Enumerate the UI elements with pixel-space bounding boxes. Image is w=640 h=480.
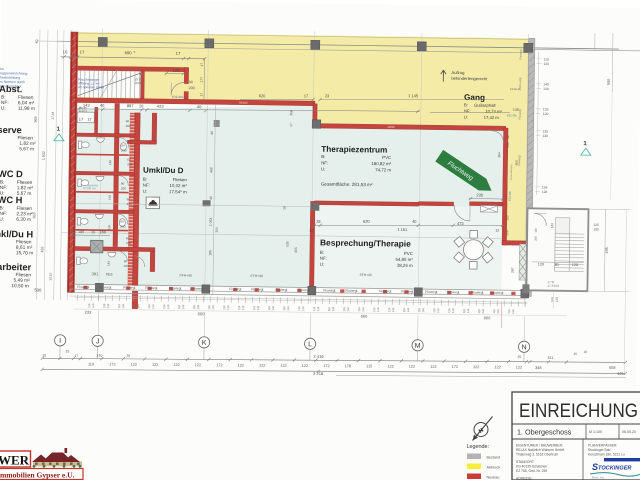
svg-text:455: 455 <box>294 247 298 253</box>
svg-text:5,67 m: 5,67 m <box>19 146 34 152</box>
svg-text:B:: B: <box>0 179 4 185</box>
svg-text:140: 140 <box>481 308 485 313</box>
svg-text:122: 122 <box>430 365 436 369</box>
svg-text:15: 15 <box>71 230 75 234</box>
svg-text:122: 122 <box>173 363 179 367</box>
svg-text:500: 500 <box>607 79 611 85</box>
svg-text:140: 140 <box>256 305 260 310</box>
svg-text:B:: B: <box>0 205 4 211</box>
svg-text:287: 287 <box>511 267 515 273</box>
svg-text:110: 110 <box>417 308 421 313</box>
svg-text:Fixvergl.: Fixvergl. <box>99 285 112 289</box>
svg-text:122: 122 <box>302 364 308 368</box>
svg-text:140: 140 <box>166 304 170 309</box>
svg-text:15: 15 <box>65 349 69 353</box>
svg-text:6,30 m: 6,30 m <box>16 217 31 223</box>
svg-text:620: 620 <box>363 219 371 224</box>
svg-text:119: 119 <box>88 362 94 366</box>
svg-text:449: 449 <box>617 372 623 376</box>
svg-text:270: 270 <box>96 354 102 358</box>
svg-text:200: 200 <box>127 202 132 206</box>
svg-text:B:: B: <box>1 94 6 100</box>
svg-text:110: 110 <box>477 308 481 313</box>
svg-text:140: 140 <box>196 304 200 309</box>
svg-text:110: 110 <box>507 309 511 314</box>
svg-text:160: 160 <box>108 195 112 200</box>
svg-text:Legende:: Legende: <box>467 444 489 450</box>
svg-text:11,98 m: 11,98 m <box>18 106 35 112</box>
svg-text:Gesamtfläche: 281,53 m²: Gesamtfläche: 281,53 m² <box>321 182 373 188</box>
svg-text:110: 110 <box>207 305 211 310</box>
svg-text:Mitarbeiter: Mitarbeiter <box>0 262 32 273</box>
svg-text:Umkl/Du H: Umkl/Du H <box>0 229 33 240</box>
svg-text:140: 140 <box>391 307 395 312</box>
svg-text:180: 180 <box>108 160 112 165</box>
svg-text:23: 23 <box>325 94 329 98</box>
svg-text:17: 17 <box>80 50 85 55</box>
svg-text:138: 138 <box>543 134 549 138</box>
svg-text:495: 495 <box>605 247 609 253</box>
svg-text:110: 110 <box>387 307 391 312</box>
svg-text:M 1:100: M 1:100 <box>589 430 602 434</box>
svg-text:FPH+95: FPH+95 <box>518 77 522 88</box>
svg-text:40: 40 <box>35 39 39 43</box>
svg-text:190: 190 <box>505 215 509 221</box>
svg-text:12: 12 <box>495 228 499 232</box>
svg-text:969: 969 <box>34 116 38 122</box>
svg-text:110: 110 <box>342 307 346 312</box>
svg-text:1 161: 1 161 <box>397 227 408 232</box>
svg-text:140: 140 <box>555 297 559 302</box>
svg-text:660: 660 <box>361 314 369 319</box>
svg-text:180,82 m²: 180,82 m² <box>371 161 391 166</box>
svg-text:140: 140 <box>226 305 230 310</box>
svg-text:140: 140 <box>271 306 275 311</box>
svg-text:1,82 m²: 1,82 m² <box>19 141 36 147</box>
svg-text:140: 140 <box>543 82 549 86</box>
svg-text:110: 110 <box>402 307 406 312</box>
svg-text:120: 120 <box>172 68 180 73</box>
svg-text:110: 110 <box>282 306 286 311</box>
svg-text:17,42 m: 17,42 m <box>484 115 500 120</box>
svg-text:122: 122 <box>238 363 244 367</box>
svg-text:TOCKINGER: TOCKINGER <box>598 466 631 472</box>
svg-text:06.05.20: 06.05.20 <box>622 430 636 434</box>
svg-text:232: 232 <box>85 310 93 315</box>
svg-text:40: 40 <box>412 220 416 224</box>
svg-text:110: 110 <box>162 304 166 309</box>
svg-text:RELAX Natürlich Wohnen GmbH: RELAX Natürlich Wohnen GmbH <box>516 448 565 452</box>
svg-text:WC H: WC H <box>0 195 23 205</box>
svg-text:B:: B: <box>320 250 324 255</box>
svg-text:FFH+90: FFH+90 <box>180 273 193 277</box>
svg-text:200: 200 <box>126 241 131 245</box>
svg-text:10: 10 <box>126 354 130 358</box>
svg-text:120: 120 <box>543 112 549 116</box>
svg-text:12: 12 <box>309 228 313 232</box>
svg-text:Fixvergl.: Fixvergl. <box>229 287 242 291</box>
svg-text:140: 140 <box>91 303 95 308</box>
svg-text:140: 140 <box>346 307 350 312</box>
svg-text:473: 473 <box>457 221 465 226</box>
svg-text:NF:: NF: <box>320 256 327 261</box>
svg-text:172: 172 <box>216 363 222 367</box>
svg-text:17,54⁵ m: 17,54⁵ m <box>169 189 187 194</box>
svg-text:PVC: PVC <box>404 251 413 256</box>
svg-text:28: 28 <box>282 206 286 210</box>
svg-text:140: 140 <box>211 305 215 310</box>
svg-text:78,5: 78,5 <box>106 272 113 276</box>
svg-text:E32-30c: E32-30c <box>507 113 518 117</box>
svg-text:NF:: NF: <box>321 160 328 165</box>
svg-text:140: 140 <box>136 304 140 309</box>
svg-text:Fixvergl.: Fixvergl. <box>275 288 288 292</box>
svg-text:690: 690 <box>125 50 133 55</box>
svg-text:17: 17 <box>304 94 308 98</box>
svg-text:E32-90e: E32-90e <box>172 95 184 99</box>
svg-text:122: 122 <box>195 363 201 367</box>
svg-text:185: 185 <box>208 250 212 256</box>
svg-text:140: 140 <box>121 303 125 308</box>
svg-text:NF:: NF: <box>143 183 150 188</box>
svg-text:Fixvergl.: Fixvergl. <box>401 290 414 294</box>
svg-text:110: 110 <box>177 304 181 309</box>
svg-text:122: 122 <box>494 365 500 369</box>
svg-text:U:: U: <box>464 115 468 120</box>
svg-text:200: 200 <box>121 186 126 190</box>
svg-text:PVC: PVC <box>382 155 391 160</box>
svg-text:122: 122 <box>152 363 158 367</box>
svg-text:10: 10 <box>584 350 588 354</box>
svg-text:Fliesen: Fliesen <box>17 180 33 186</box>
svg-text:Bestand: Bestand <box>487 456 501 460</box>
svg-text:110: 110 <box>267 306 271 311</box>
svg-text:321: 321 <box>547 356 553 360</box>
svg-text:Abbruch: Abbruch <box>487 466 501 470</box>
svg-text:40: 40 <box>210 131 214 135</box>
svg-text:140: 140 <box>376 307 380 312</box>
svg-text:RE90: RE90 <box>388 125 395 129</box>
svg-text:17: 17 <box>289 123 293 127</box>
svg-text:60: 60 <box>127 158 131 162</box>
svg-text:FFH+90: FFH+90 <box>360 273 373 277</box>
svg-text:80: 80 <box>121 182 125 186</box>
svg-text:NF:: NF: <box>0 185 8 191</box>
svg-text:235: 235 <box>476 192 484 197</box>
svg-text:64,85 m²: 64,85 m² <box>395 257 413 262</box>
svg-text:Neubau: Neubau <box>487 476 500 480</box>
svg-text:200: 200 <box>121 148 126 152</box>
svg-text:364: 364 <box>497 152 501 158</box>
svg-text:E32-30c: E32-30c <box>508 190 512 200</box>
svg-text:200: 200 <box>124 264 129 268</box>
svg-text:K: K <box>202 340 207 347</box>
svg-text:Reserve: Reserve <box>0 125 22 136</box>
svg-text:15: 15 <box>573 352 577 356</box>
svg-text:2 419: 2 419 <box>313 354 324 359</box>
svg-text:120: 120 <box>572 263 578 267</box>
svg-text:80: 80 <box>121 144 125 148</box>
svg-text:110: 110 <box>447 308 451 313</box>
svg-text:90: 90 <box>189 80 193 84</box>
svg-text:120: 120 <box>544 62 550 66</box>
svg-text:226: 226 <box>505 230 509 236</box>
svg-text:17: 17 <box>200 63 204 67</box>
svg-text:200: 200 <box>534 236 538 241</box>
svg-text:110: 110 <box>147 304 151 309</box>
svg-text:15,70 m: 15,70 m <box>16 250 33 256</box>
svg-text:140: 140 <box>106 303 110 308</box>
svg-text:I: I <box>59 338 61 345</box>
svg-text:Fixvergl.: Fixvergl. <box>471 291 484 295</box>
svg-text:120: 120 <box>543 87 549 91</box>
svg-text:100: 100 <box>107 225 111 230</box>
svg-text:Bmstr. Ing. ...: Bmstr. Ing. ... <box>592 476 608 480</box>
svg-text:120: 120 <box>538 262 544 266</box>
svg-text:Fixvergl.: Fixvergl. <box>77 285 90 289</box>
svg-text:H=100 cm: H=100 cm <box>83 186 97 190</box>
svg-text:140: 140 <box>331 306 335 311</box>
svg-text:100: 100 <box>593 227 599 231</box>
svg-text:EZ 768, Grst. Nr. 259: EZ 768, Grst. Nr. 259 <box>516 469 547 473</box>
svg-text:Thalerweg 3, 5162 Obertrum: Thalerweg 3, 5162 Obertrum <box>516 452 558 456</box>
svg-text:200: 200 <box>120 224 125 228</box>
svg-text:Fixvergl.: Fixvergl. <box>345 289 358 293</box>
svg-text:135: 135 <box>543 129 549 133</box>
svg-text:60: 60 <box>126 236 130 240</box>
svg-text:L: L <box>308 341 312 348</box>
svg-text:KG 40135 Schalchen: KG 40135 Schalchen <box>516 464 547 468</box>
svg-text:PLANVERFASSER:: PLANVERFASSER: <box>588 444 617 448</box>
svg-text:110: 110 <box>312 306 316 311</box>
svg-text:115: 115 <box>366 364 372 368</box>
svg-text:U:: U: <box>0 216 4 222</box>
svg-text:140: 140 <box>361 307 365 312</box>
svg-text:110: 110 <box>372 307 376 312</box>
svg-text:Fixvergl.: Fixvergl. <box>191 287 204 291</box>
svg-text:Fixvergl.: Fixvergl. <box>425 290 438 294</box>
svg-text:Fliesen: Fliesen <box>173 177 188 182</box>
svg-text:Fliesen: Fliesen <box>16 272 32 278</box>
svg-text:200: 200 <box>506 142 510 147</box>
svg-text:300: 300 <box>215 227 219 232</box>
svg-text:160: 160 <box>99 229 107 234</box>
svg-text:535: 535 <box>285 241 289 247</box>
svg-text:140: 140 <box>301 306 305 311</box>
svg-text:110: 110 <box>432 308 436 313</box>
svg-text:110: 110 <box>462 308 466 313</box>
svg-text:460: 460 <box>515 160 519 166</box>
svg-text:U:: U: <box>1 105 6 111</box>
svg-text:2,23 m²: 2,23 m² <box>16 211 33 217</box>
svg-text:1 145: 1 145 <box>408 93 419 98</box>
svg-text:Fixvergl.: Fixvergl. <box>518 108 522 119</box>
svg-text:25: 25 <box>517 355 521 359</box>
svg-text:140: 140 <box>286 306 290 311</box>
svg-text:Fixvergl.: Fixvergl. <box>491 291 504 295</box>
svg-text:40: 40 <box>209 196 213 200</box>
svg-text:1,82 m²: 1,82 m² <box>17 185 34 191</box>
svg-text:ADRESSE:: ADRESSE: <box>516 477 533 480</box>
svg-text:Aufzug: Aufzug <box>451 70 465 75</box>
svg-text:81: 81 <box>555 263 559 267</box>
svg-text:120: 120 <box>534 228 538 233</box>
svg-text:Fixvergl.: Fixvergl. <box>447 290 460 294</box>
svg-text:200: 200 <box>127 163 132 167</box>
svg-text:Fixvergl.: Fixvergl. <box>123 286 136 290</box>
svg-text:140: 140 <box>436 308 440 313</box>
svg-text:140: 140 <box>451 308 455 313</box>
svg-text:140: 140 <box>511 309 515 314</box>
svg-text:6,04 m²: 6,04 m² <box>18 100 35 106</box>
svg-text:10: 10 <box>91 230 95 234</box>
svg-text:NF:: NF: <box>464 108 471 113</box>
svg-text:U:: U: <box>143 189 147 194</box>
svg-text:128: 128 <box>542 190 548 194</box>
svg-text:620: 620 <box>259 93 267 98</box>
svg-text:Besprechung/Therapie: Besprechung/Therapie <box>320 237 411 248</box>
svg-text:Fliesen: Fliesen <box>16 206 32 212</box>
svg-text:140: 140 <box>496 309 500 314</box>
svg-text:U:: U: <box>320 262 324 267</box>
svg-text:90: 90 <box>506 135 510 139</box>
svg-text:122: 122 <box>280 364 286 368</box>
svg-text:28: 28 <box>316 220 320 224</box>
svg-text:183: 183 <box>107 261 111 266</box>
svg-text:110: 110 <box>327 306 331 311</box>
svg-text:110: 110 <box>222 305 226 310</box>
svg-text:Therapiezentrum: Therapiezentrum <box>321 145 387 155</box>
svg-text:110: 110 <box>492 309 496 314</box>
svg-text:EIGENTÜMER / BAUWERBER:: EIGENTÜMER / BAUWERBER: <box>516 444 563 448</box>
svg-text:455: 455 <box>40 247 44 253</box>
svg-text:172: 172 <box>109 363 115 367</box>
svg-text:EINREICHUNG: EINREICHUNG <box>519 400 638 422</box>
svg-text:140: 140 <box>181 304 185 309</box>
svg-text:200: 200 <box>189 86 195 90</box>
svg-text:660: 660 <box>198 311 206 316</box>
svg-text:Fliesen: Fliesen <box>17 135 33 141</box>
svg-text:M: M <box>415 343 421 350</box>
svg-text:Kerschham 180, 5221 Lo: Kerschham 180, 5221 Lo <box>588 452 625 456</box>
svg-text:140: 140 <box>316 306 320 311</box>
svg-text:Fliesen: Fliesen <box>18 95 34 101</box>
svg-text:140: 140 <box>466 308 470 313</box>
svg-text:110: 110 <box>252 305 256 310</box>
svg-text:172: 172 <box>452 365 458 369</box>
svg-text:140: 140 <box>151 304 155 309</box>
svg-text:RE290: RE290 <box>239 101 248 105</box>
svg-text:B:: B: <box>143 177 147 182</box>
svg-text:17: 17 <box>176 51 181 56</box>
svg-text:90: 90 <box>124 259 128 263</box>
svg-text:Fixvergl.: Fixvergl. <box>323 288 336 292</box>
svg-text:177: 177 <box>200 77 204 83</box>
svg-text:110: 110 <box>357 307 361 312</box>
svg-text:135: 135 <box>543 107 549 111</box>
svg-text:Fixvergl.: Fixvergl. <box>251 287 264 291</box>
svg-text:Immobilien Gypser e.U.: Immobilien Gypser e.U. <box>0 470 75 479</box>
svg-text:17,44: 17,44 <box>51 111 55 119</box>
svg-text:110: 110 <box>237 305 241 310</box>
svg-text:5,49 m²: 5,49 m² <box>13 278 30 284</box>
svg-text:Fixvergl.: Fixvergl. <box>145 286 158 290</box>
svg-text:122: 122 <box>473 365 479 369</box>
svg-text:60: 60 <box>127 197 131 201</box>
svg-text:Sicherheitsbel.: Sicherheitsbel. <box>510 163 513 180</box>
svg-text:110: 110 <box>102 303 106 308</box>
svg-text:10,50 m: 10,50 m <box>11 283 28 289</box>
svg-text:3 216: 3 216 <box>313 371 324 376</box>
svg-text:125: 125 <box>593 223 599 227</box>
svg-text:10: 10 <box>63 49 68 54</box>
svg-text:Fixvergl.: Fixvergl. <box>297 288 310 292</box>
svg-text:122: 122 <box>131 363 137 367</box>
svg-text:B:: B: <box>464 102 468 107</box>
svg-text:NF:: NF: <box>0 211 7 217</box>
svg-text:38,26 m: 38,26 m <box>397 263 413 268</box>
svg-text:17: 17 <box>200 93 204 97</box>
svg-text:140: 140 <box>241 305 245 310</box>
svg-text:460: 460 <box>209 167 213 173</box>
svg-text:172: 172 <box>323 364 329 368</box>
svg-text:500: 500 <box>34 287 42 292</box>
svg-text:17: 17 <box>74 354 78 358</box>
svg-text:WER: WER <box>0 453 30 468</box>
svg-text:1 063: 1 063 <box>209 218 213 227</box>
svg-text:10: 10 <box>42 354 46 358</box>
svg-text:1120 l): 1120 l) <box>79 109 87 113</box>
svg-text:122: 122 <box>259 364 265 368</box>
svg-text:110: 110 <box>192 305 196 310</box>
svg-text:behindertengerecht: behindertengerecht <box>451 76 488 82</box>
svg-text:J: J <box>96 338 100 345</box>
svg-text:Abst.: Abst. <box>0 84 22 94</box>
svg-text:FFH+90: FFH+90 <box>251 274 264 278</box>
svg-text:140: 140 <box>550 223 554 229</box>
svg-text:348: 348 <box>535 366 541 370</box>
svg-text:1 832: 1 832 <box>42 151 46 160</box>
svg-text:80: 80 <box>120 220 124 224</box>
svg-text:110: 110 <box>297 306 301 311</box>
svg-text:185: 185 <box>78 230 84 234</box>
svg-text:110: 110 <box>87 303 91 308</box>
svg-text:WC D: WC D <box>0 169 23 179</box>
svg-text:100: 100 <box>550 297 554 302</box>
svg-text:110: 110 <box>544 57 549 61</box>
svg-text:Gang: Gang <box>464 93 485 102</box>
svg-text:Umkl/Du D: Umkl/Du D <box>143 166 184 176</box>
svg-text:Gußasphalt: Gußasphalt <box>474 103 497 108</box>
svg-text:887: 887 <box>127 103 135 108</box>
svg-text:N: N <box>522 344 527 351</box>
svg-text:953: 953 <box>32 212 36 218</box>
svg-text:358: 358 <box>289 110 293 116</box>
svg-text:B:: B: <box>321 154 325 159</box>
svg-text:NF:: NF: <box>1 100 9 106</box>
svg-text:391: 391 <box>92 271 100 276</box>
svg-text:17,3:26,8: 17,3:26,8 <box>547 284 559 288</box>
svg-text:140: 140 <box>406 307 410 312</box>
svg-text:1. Obergeschoss: 1. Obergeschoss <box>517 428 572 437</box>
svg-text:10,10: 10,10 <box>48 272 52 280</box>
svg-text:60: 60 <box>126 119 130 123</box>
svg-text:8,61 m²: 8,61 m² <box>16 245 33 251</box>
svg-text:122: 122 <box>387 365 393 369</box>
svg-text:126: 126 <box>542 185 548 189</box>
svg-text:STANDORT:: STANDORT: <box>516 460 534 464</box>
svg-text:110: 110 <box>117 303 121 308</box>
